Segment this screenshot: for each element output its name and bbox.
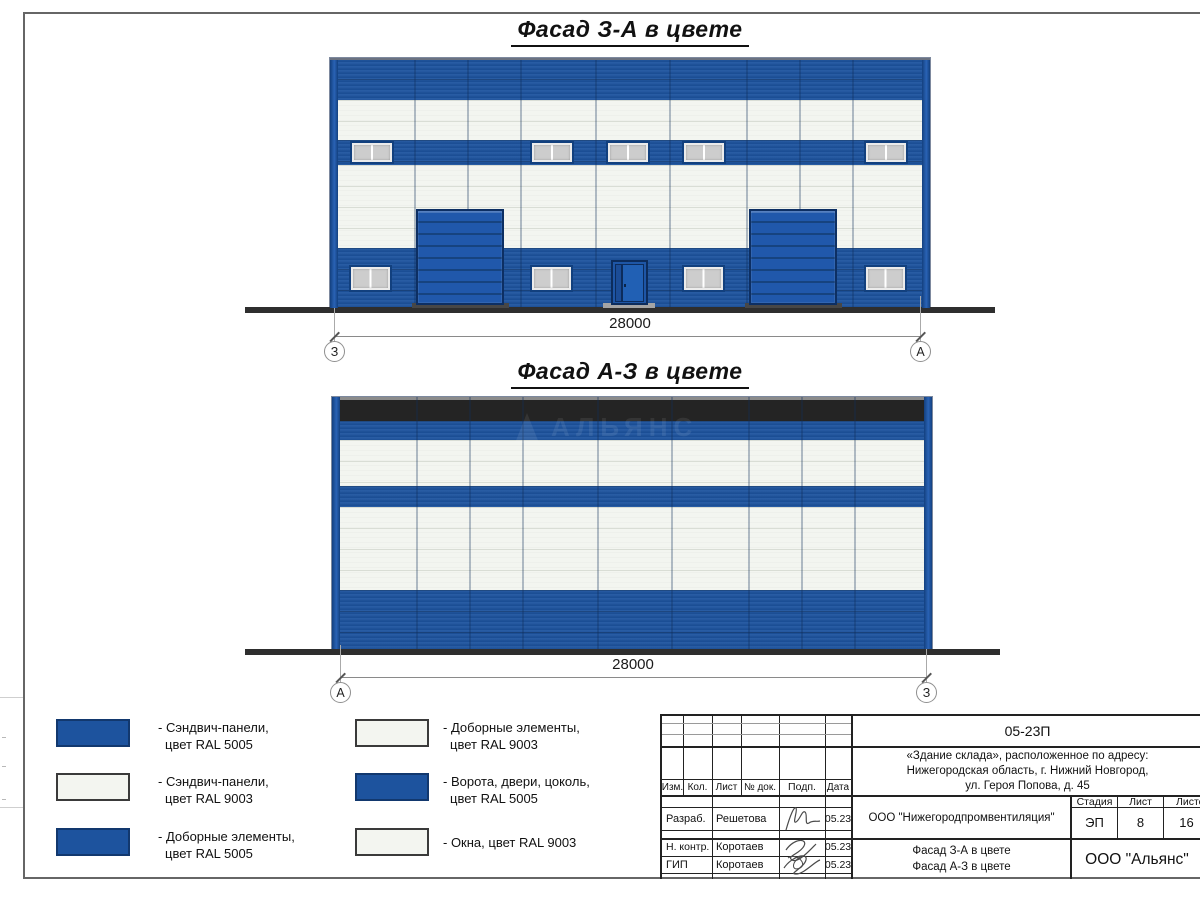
tb-role: ГИП	[662, 856, 712, 873]
sectional-gate	[749, 209, 837, 305]
facade-az-title: Фасад А-З в цвете	[330, 358, 930, 389]
panel-joint-line	[746, 58, 748, 308]
frame-top	[23, 12, 1200, 14]
tb-col-doc: № док.	[741, 779, 779, 795]
tb-name: Решетова	[712, 807, 779, 830]
legend-label-line2: цвет RAL 5005	[443, 791, 590, 808]
legend-swatch-ral9003	[355, 719, 429, 747]
signature	[780, 802, 825, 834]
margin-stamp-mark	[2, 799, 6, 800]
legend-swatch-ral5005	[56, 719, 130, 747]
frame-left	[23, 12, 25, 877]
margin-stamp-mark	[2, 737, 6, 738]
tb-object-address: «Здание склада», расположенное по адресу…	[853, 748, 1200, 795]
tb-stage-value: ЭП	[1072, 807, 1117, 838]
drawing-sheet: Фасад З-А в цвете	[0, 0, 1200, 900]
entrance-door	[611, 260, 648, 305]
watermark-logo-icon	[515, 413, 539, 443]
panel-joint-line	[669, 58, 671, 308]
window-glass	[534, 269, 569, 288]
tb-list-header: Лист	[1118, 797, 1163, 807]
panel-joint-line	[520, 58, 522, 308]
window	[606, 141, 650, 164]
tb-object-line: ул. Героя Попова, д. 45	[965, 779, 1090, 794]
window-glass	[534, 145, 570, 160]
axis-bubble-right: З	[916, 682, 937, 703]
panel-joint-line	[852, 58, 854, 308]
tb-org: ООО "Нижегородпромвентиляция"	[853, 797, 1070, 838]
facade-za-drawing	[330, 58, 930, 308]
dimension-value: 28000	[333, 656, 933, 673]
tb-name: Коротаев	[712, 838, 779, 856]
watermark-text: АЛЬЯНС	[551, 412, 698, 443]
door-leaf	[622, 264, 644, 302]
window	[530, 265, 573, 292]
window-glass	[610, 145, 646, 160]
window-glass	[868, 145, 904, 160]
signature	[778, 834, 826, 878]
window-glass	[868, 269, 903, 288]
tb-col-podp: Подп.	[779, 779, 825, 795]
window-glass	[353, 269, 388, 288]
corner-trim-right	[924, 397, 932, 649]
tb-role: Разраб.	[662, 807, 712, 830]
legend-swatch-ral5005	[355, 773, 429, 801]
tb-company: ООО "Альянс"	[1072, 840, 1200, 879]
panel-joint-line	[748, 397, 750, 649]
tb-date: 05.23	[825, 856, 851, 873]
window-glass	[686, 145, 722, 160]
legend-item: - Окна, цвет RAL 9003	[355, 828, 576, 856]
window	[864, 141, 908, 164]
tb-col-kol: Кол.	[683, 779, 712, 795]
tb-date: 05.23	[825, 838, 851, 856]
corner-trim-left	[332, 397, 340, 649]
tb-object-line: «Здание склада», расположенное по адресу…	[907, 749, 1149, 764]
tb-col-data: Дата	[825, 779, 851, 795]
tb-line	[662, 734, 851, 735]
tb-sheet-title: Фасад З-А в цвете Фасад А-З в цвете	[853, 840, 1070, 879]
window	[349, 265, 392, 292]
tb-listov-header: Листов	[1164, 797, 1200, 807]
window-glass	[686, 269, 721, 288]
facade-za-title-text: Фасад З-А в цвете	[511, 16, 748, 47]
legend-label-line2: цвет RAL 5005	[158, 737, 269, 754]
dimension-value: 28000	[330, 315, 930, 332]
facade-za-title: Фасад З-А в цвете	[330, 16, 930, 47]
legend-label-line1: - Сэндвич-панели,	[158, 720, 269, 735]
legend-label-line1: - Доборные элементы,	[443, 720, 580, 735]
legend-label: - Доборные элементы, цвет RAL 5005	[158, 828, 295, 863]
tb-list-value: 8	[1118, 807, 1163, 838]
panel-joint-line	[854, 397, 856, 649]
window	[682, 141, 726, 164]
tb-object-line: Нижегородская область, г. Нижний Новгоро…	[907, 764, 1149, 779]
legend-label-line2: цвет RAL 9003	[158, 791, 269, 808]
legend-item: - Сэндвич-панели, цвет RAL 5005	[56, 719, 269, 754]
dimension-line	[334, 336, 921, 337]
sectional-gate	[416, 209, 504, 305]
legend-label: - Доборные элементы, цвет RAL 9003	[443, 719, 580, 754]
legend-item: - Сэндвич-панели, цвет RAL 9003	[56, 773, 269, 808]
window	[682, 265, 725, 292]
legend-item: - Доборные элементы, цвет RAL 5005	[56, 828, 295, 863]
tb-date: 05.23	[825, 807, 851, 830]
axis-bubble-left: А	[330, 682, 351, 703]
legend-swatch-ral9003	[355, 828, 429, 856]
legend-label-line2: цвет RAL 9003	[443, 737, 580, 754]
roof-edge-line	[330, 58, 930, 60]
legend-label-line1: - Окна, цвет RAL 9003	[443, 835, 576, 850]
panel-joint-line	[469, 397, 471, 649]
tb-stage-header: Стадия	[1072, 797, 1117, 807]
legend-swatch-ral5005	[56, 828, 130, 856]
tb-listov-value: 16	[1164, 807, 1200, 838]
tb-col-list: Лист	[712, 779, 741, 795]
window	[530, 141, 574, 164]
panel-joint-line	[801, 397, 803, 649]
tb-doc-number: 05-23П	[853, 716, 1200, 746]
legend-label: - Ворота, двери, цоколь, цвет RAL 5005	[443, 773, 590, 808]
legend-label: - Окна, цвет RAL 9003	[443, 828, 576, 852]
legend-label-line2: цвет RAL 5005	[158, 846, 295, 863]
corner-trim-right	[922, 58, 930, 308]
panel-joint-line	[416, 397, 418, 649]
margin-stamp-line	[0, 697, 23, 698]
margin-stamp-line	[0, 807, 23, 808]
legend-item: - Ворота, двери, цоколь, цвет RAL 5005	[355, 773, 590, 808]
legend-item: - Доборные элементы, цвет RAL 9003	[355, 719, 580, 754]
legend-label-line1: - Сэндвич-панели,	[158, 774, 269, 789]
margin-stamp-mark	[2, 766, 6, 767]
ground-line	[245, 649, 1000, 655]
window	[864, 265, 907, 292]
legend-label-line1: - Ворота, двери, цоколь,	[443, 774, 590, 789]
window	[350, 141, 394, 164]
window-glass	[354, 145, 390, 160]
door-handle	[624, 284, 626, 287]
tb-col-izm: Изм.	[662, 779, 683, 795]
corner-trim-left	[330, 58, 338, 308]
legend-label: - Сэндвич-панели, цвет RAL 9003	[158, 773, 269, 808]
legend-swatch-ral9003	[56, 773, 130, 801]
company-watermark: АЛЬЯНС	[515, 412, 698, 443]
tb-sheet-title-line: Фасад З-А в цвете	[912, 844, 1010, 860]
tb-sheet-title-line: Фасад А-З в цвете	[912, 860, 1010, 876]
tb-line	[662, 723, 851, 724]
tb-role: Н. контр.	[662, 838, 712, 856]
door-sidelight	[615, 264, 622, 302]
title-block: Изм. Кол. Лист № док. Подп. Дата Разраб.…	[660, 714, 1200, 879]
panel-joint-line	[595, 58, 597, 308]
tb-name: Коротаев	[712, 856, 779, 873]
legend-label-line1: - Доборные элементы,	[158, 829, 295, 844]
dimension-line	[340, 677, 927, 678]
legend-label: - Сэндвич-панели, цвет RAL 5005	[158, 719, 269, 754]
facade-az-title-text: Фасад А-З в цвете	[511, 358, 748, 389]
